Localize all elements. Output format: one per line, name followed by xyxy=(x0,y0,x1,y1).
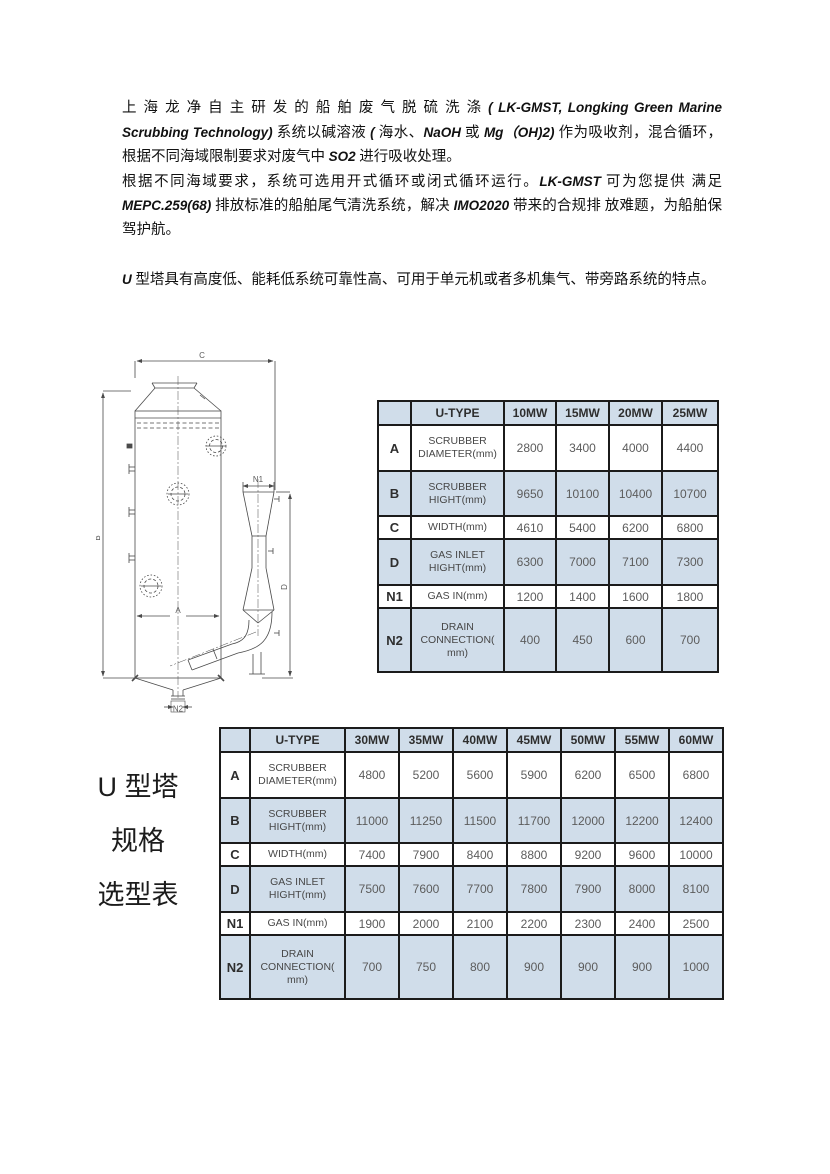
power-header-cell: 10MW xyxy=(504,401,556,425)
power-header-cell: 40MW xyxy=(453,728,507,752)
value-cell: 1000 xyxy=(669,935,723,999)
value-cell: 9650 xyxy=(504,471,556,516)
spec-row-n2: N2DRAIN CONNECTION( mm)70075080090090090… xyxy=(220,935,723,999)
spec-table-30-60mw: U-TYPE30MW35MW40MW45MW50MW55MW60MWASCRUB… xyxy=(219,727,722,1000)
spec-row-b: BSCRUBBER HIGHT(mm)9650101001040010700 xyxy=(378,471,718,516)
parameter-name: GAS INLET HIGHT(mm) xyxy=(411,539,504,585)
value-cell: 7900 xyxy=(561,866,615,912)
caption-line-2: 规格 xyxy=(78,814,198,868)
value-cell: 6800 xyxy=(662,516,718,539)
power-header-cell: 45MW xyxy=(507,728,561,752)
value-cell: 2300 xyxy=(561,912,615,935)
latin-run: U xyxy=(122,272,132,287)
row-key: D xyxy=(220,866,250,912)
value-cell: 4610 xyxy=(504,516,556,539)
value-cell: 5400 xyxy=(556,516,609,539)
parameter-name: SCRUBBER DIAMETER(mm) xyxy=(250,752,345,798)
scrubber-technical-drawing: C B A D N1 N2 xyxy=(96,346,316,718)
power-header-cell: 20MW xyxy=(609,401,662,425)
spec-table-10-25mw: U-TYPE10MW15MW20MW25MWASCRUBBER DIAMETER… xyxy=(377,400,717,673)
value-cell: 6500 xyxy=(615,752,669,798)
value-cell: 12400 xyxy=(669,798,723,843)
dim-label-n1: N1 xyxy=(253,475,264,484)
value-cell: 700 xyxy=(345,935,399,999)
value-cell: 2100 xyxy=(453,912,507,935)
latin-run: Mg（OH)2) xyxy=(484,125,559,140)
value-cell: 5900 xyxy=(507,752,561,798)
value-cell: 5600 xyxy=(453,752,507,798)
value-cell: 5200 xyxy=(399,752,453,798)
type-header-cell: U-TYPE xyxy=(411,401,504,425)
parameter-name: WIDTH(mm) xyxy=(411,516,504,539)
value-cell: 10100 xyxy=(556,471,609,516)
value-cell: 11700 xyxy=(507,798,561,843)
dim-label-a: A xyxy=(175,606,181,615)
value-cell: 7500 xyxy=(345,866,399,912)
value-cell: 450 xyxy=(556,608,609,672)
power-header-cell: 30MW xyxy=(345,728,399,752)
value-cell: 8000 xyxy=(615,866,669,912)
value-cell: 9200 xyxy=(561,843,615,866)
dim-label-c: C xyxy=(199,351,205,360)
value-cell: 750 xyxy=(399,935,453,999)
cjk-run: 进行吸收处理。 xyxy=(356,149,461,165)
value-cell: 3400 xyxy=(556,425,609,471)
power-header-cell: 60MW xyxy=(669,728,723,752)
parameter-name: DRAIN CONNECTION( mm) xyxy=(411,608,504,672)
caption-line-3: 选型表 xyxy=(78,868,198,922)
spec-row-n2: N2DRAIN CONNECTION( mm)400450600700 xyxy=(378,608,718,672)
spec-row-b: BSCRUBBER HIGHT(mm)110001125011500117001… xyxy=(220,798,723,843)
value-cell: 2200 xyxy=(507,912,561,935)
value-cell: 6300 xyxy=(504,539,556,585)
cjk-run: 或 xyxy=(461,125,484,141)
value-cell: 4400 xyxy=(662,425,718,471)
spec-row-a: ASCRUBBER DIAMETER(mm)2800340040004400 xyxy=(378,425,718,471)
row-key: N1 xyxy=(378,585,411,608)
value-cell: 7000 xyxy=(556,539,609,585)
value-cell: 12200 xyxy=(615,798,669,843)
parameter-name: GAS IN(mm) xyxy=(411,585,504,608)
value-cell: 7600 xyxy=(399,866,453,912)
document-page: 上 海 龙 净 自 主 研 发 的 船 舶 废 气 脱 硫 洗 涤 ( LK-G… xyxy=(0,0,830,1174)
row-key: B xyxy=(378,471,411,516)
value-cell: 6200 xyxy=(561,752,615,798)
spec-row-n1: N1GAS IN(mm)1200140016001800 xyxy=(378,585,718,608)
cjk-run: 海水、 xyxy=(379,125,424,141)
value-cell: 900 xyxy=(561,935,615,999)
scrubber-drawing-svg: C B A D N1 N2 xyxy=(96,346,316,718)
value-cell: 11500 xyxy=(453,798,507,843)
value-cell: 7700 xyxy=(453,866,507,912)
dim-label-b: B xyxy=(96,535,102,540)
value-cell: 8400 xyxy=(453,843,507,866)
dim-label-d: D xyxy=(280,584,289,590)
value-cell: 800 xyxy=(453,935,507,999)
value-cell: 7900 xyxy=(399,843,453,866)
power-header-cell: 35MW xyxy=(399,728,453,752)
power-header-cell: 15MW xyxy=(556,401,609,425)
cjk-run: 排放标准的船舶尾气清洗系统，解决 xyxy=(211,198,453,214)
value-cell: 900 xyxy=(507,935,561,999)
value-cell: 10400 xyxy=(609,471,662,516)
value-cell: 7400 xyxy=(345,843,399,866)
value-cell: 11250 xyxy=(399,798,453,843)
row-key: N2 xyxy=(378,608,411,672)
cjk-run: 型塔具有高度低、能耗低系统可靠性高、可用于单元机或者多机集气、带旁路系统的特点。 xyxy=(132,272,716,288)
caption-line-1: U 型塔 xyxy=(78,760,198,814)
paragraph-2: 根据不同海域要求，系统可选用开式循环或闭式循环运行。LK-GMST 可为您提供 … xyxy=(122,170,722,243)
row-key: A xyxy=(220,752,250,798)
parameter-name: WIDTH(mm) xyxy=(250,843,345,866)
value-cell: 2400 xyxy=(615,912,669,935)
value-cell: 4800 xyxy=(345,752,399,798)
value-cell: 400 xyxy=(504,608,556,672)
value-cell: 10700 xyxy=(662,471,718,516)
value-cell: 600 xyxy=(609,608,662,672)
value-cell: 2500 xyxy=(669,912,723,935)
cjk-run: 根据不同海域要求，系统可选用开式循环或闭式循环运行。 xyxy=(122,174,539,190)
latin-run: ( xyxy=(370,125,379,140)
power-header-cell: 25MW xyxy=(662,401,718,425)
value-cell: 7800 xyxy=(507,866,561,912)
value-cell: 9600 xyxy=(615,843,669,866)
spec-row-c: CWIDTH(mm)74007900840088009200960010000 xyxy=(220,843,723,866)
corner-cell xyxy=(378,401,411,425)
cjk-run: 系统以碱溶液 xyxy=(277,125,370,141)
latin-run: SO2 xyxy=(329,149,356,164)
paragraph-3: U 型塔具有高度低、能耗低系统可靠性高、可用于单元机或者多机集气、带旁路系统的特… xyxy=(122,268,722,293)
spec-row-a: ASCRUBBER DIAMETER(mm)480052005600590062… xyxy=(220,752,723,798)
value-cell: 1900 xyxy=(345,912,399,935)
power-header-cell: 50MW xyxy=(561,728,615,752)
parameter-name: SCRUBBER HIGHT(mm) xyxy=(411,471,504,516)
row-key: C xyxy=(220,843,250,866)
value-cell: 7100 xyxy=(609,539,662,585)
row-key: N2 xyxy=(220,935,250,999)
selection-table-caption: U 型塔规格选型表 xyxy=(78,760,198,922)
spec-row-c: CWIDTH(mm)4610540062006800 xyxy=(378,516,718,539)
value-cell: 700 xyxy=(662,608,718,672)
spec-row-d: DGAS INLET HIGHT(mm)6300700071007300 xyxy=(378,539,718,585)
cjk-run: 上 海 龙 净 自 主 研 发 的 船 舶 废 气 脱 硫 洗 涤 xyxy=(122,100,488,116)
paragraph-1: 上 海 龙 净 自 主 研 发 的 船 舶 废 气 脱 硫 洗 涤 ( LK-G… xyxy=(122,96,722,170)
spec-row-n1: N1GAS IN(mm)1900200021002200230024002500 xyxy=(220,912,723,935)
value-cell: 11000 xyxy=(345,798,399,843)
dim-label-n2: N2 xyxy=(173,705,184,714)
value-cell: 7300 xyxy=(662,539,718,585)
corner-cell xyxy=(220,728,250,752)
value-cell: 2800 xyxy=(504,425,556,471)
row-key: D xyxy=(378,539,411,585)
value-cell: 6800 xyxy=(669,752,723,798)
value-cell: 900 xyxy=(615,935,669,999)
parameter-name: GAS INLET HIGHT(mm) xyxy=(250,866,345,912)
value-cell: 12000 xyxy=(561,798,615,843)
value-cell: 1200 xyxy=(504,585,556,608)
parameter-name: GAS IN(mm) xyxy=(250,912,345,935)
value-cell: 8100 xyxy=(669,866,723,912)
row-key: N1 xyxy=(220,912,250,935)
parameter-name: DRAIN CONNECTION( mm) xyxy=(250,935,345,999)
parameter-name: SCRUBBER DIAMETER(mm) xyxy=(411,425,504,471)
type-header-cell: U-TYPE xyxy=(250,728,345,752)
value-cell: 10000 xyxy=(669,843,723,866)
value-cell: 6200 xyxy=(609,516,662,539)
intro-text-block: 上 海 龙 净 自 主 研 发 的 船 舶 废 气 脱 硫 洗 涤 ( LK-G… xyxy=(122,96,722,293)
latin-run: LK-GMST xyxy=(539,174,601,189)
latin-run: IMO2020 xyxy=(454,198,510,213)
value-cell: 1400 xyxy=(556,585,609,608)
value-cell: 4000 xyxy=(609,425,662,471)
row-key: B xyxy=(220,798,250,843)
spec-row-d: DGAS INLET HIGHT(mm)75007600770078007900… xyxy=(220,866,723,912)
parameter-name: SCRUBBER HIGHT(mm) xyxy=(250,798,345,843)
value-cell: 1600 xyxy=(609,585,662,608)
power-header-cell: 55MW xyxy=(615,728,669,752)
cjk-run: 可为您提供 满足 xyxy=(601,174,722,190)
value-cell: 2000 xyxy=(399,912,453,935)
latin-run: NaOH xyxy=(423,125,461,140)
row-key: C xyxy=(378,516,411,539)
value-cell: 1800 xyxy=(662,585,718,608)
row-key: A xyxy=(378,425,411,471)
latin-run: MEPC.259(68) xyxy=(122,198,211,213)
value-cell: 8800 xyxy=(507,843,561,866)
